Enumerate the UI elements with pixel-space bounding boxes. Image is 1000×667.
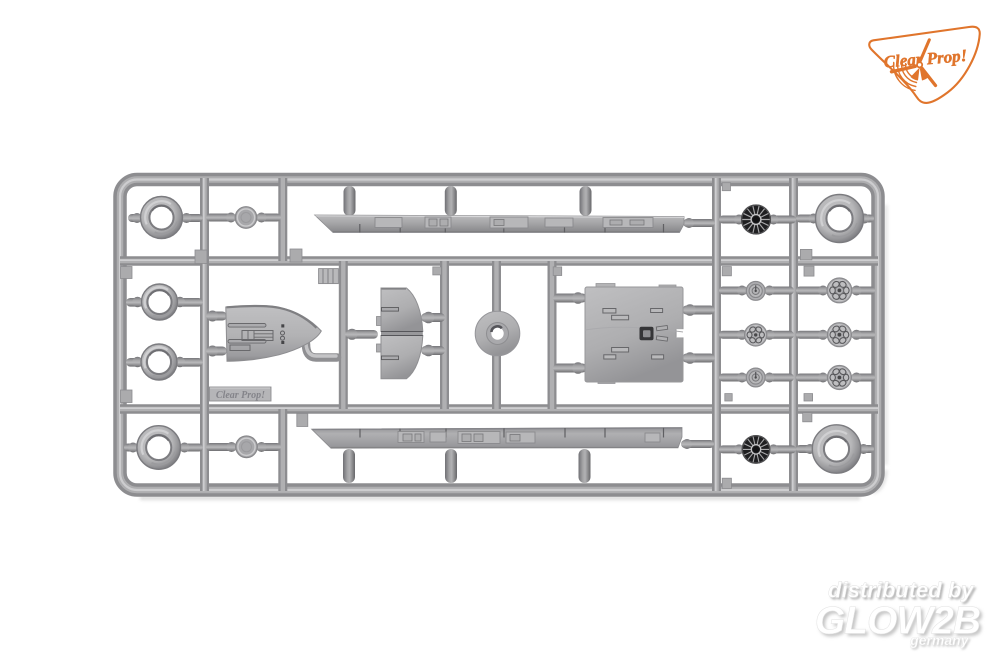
svg-text:Clear Prop!: Clear Prop! <box>216 390 265 401</box>
svg-text:germany: germany <box>909 632 970 648</box>
svg-text:Prop!: Prop! <box>925 46 968 69</box>
